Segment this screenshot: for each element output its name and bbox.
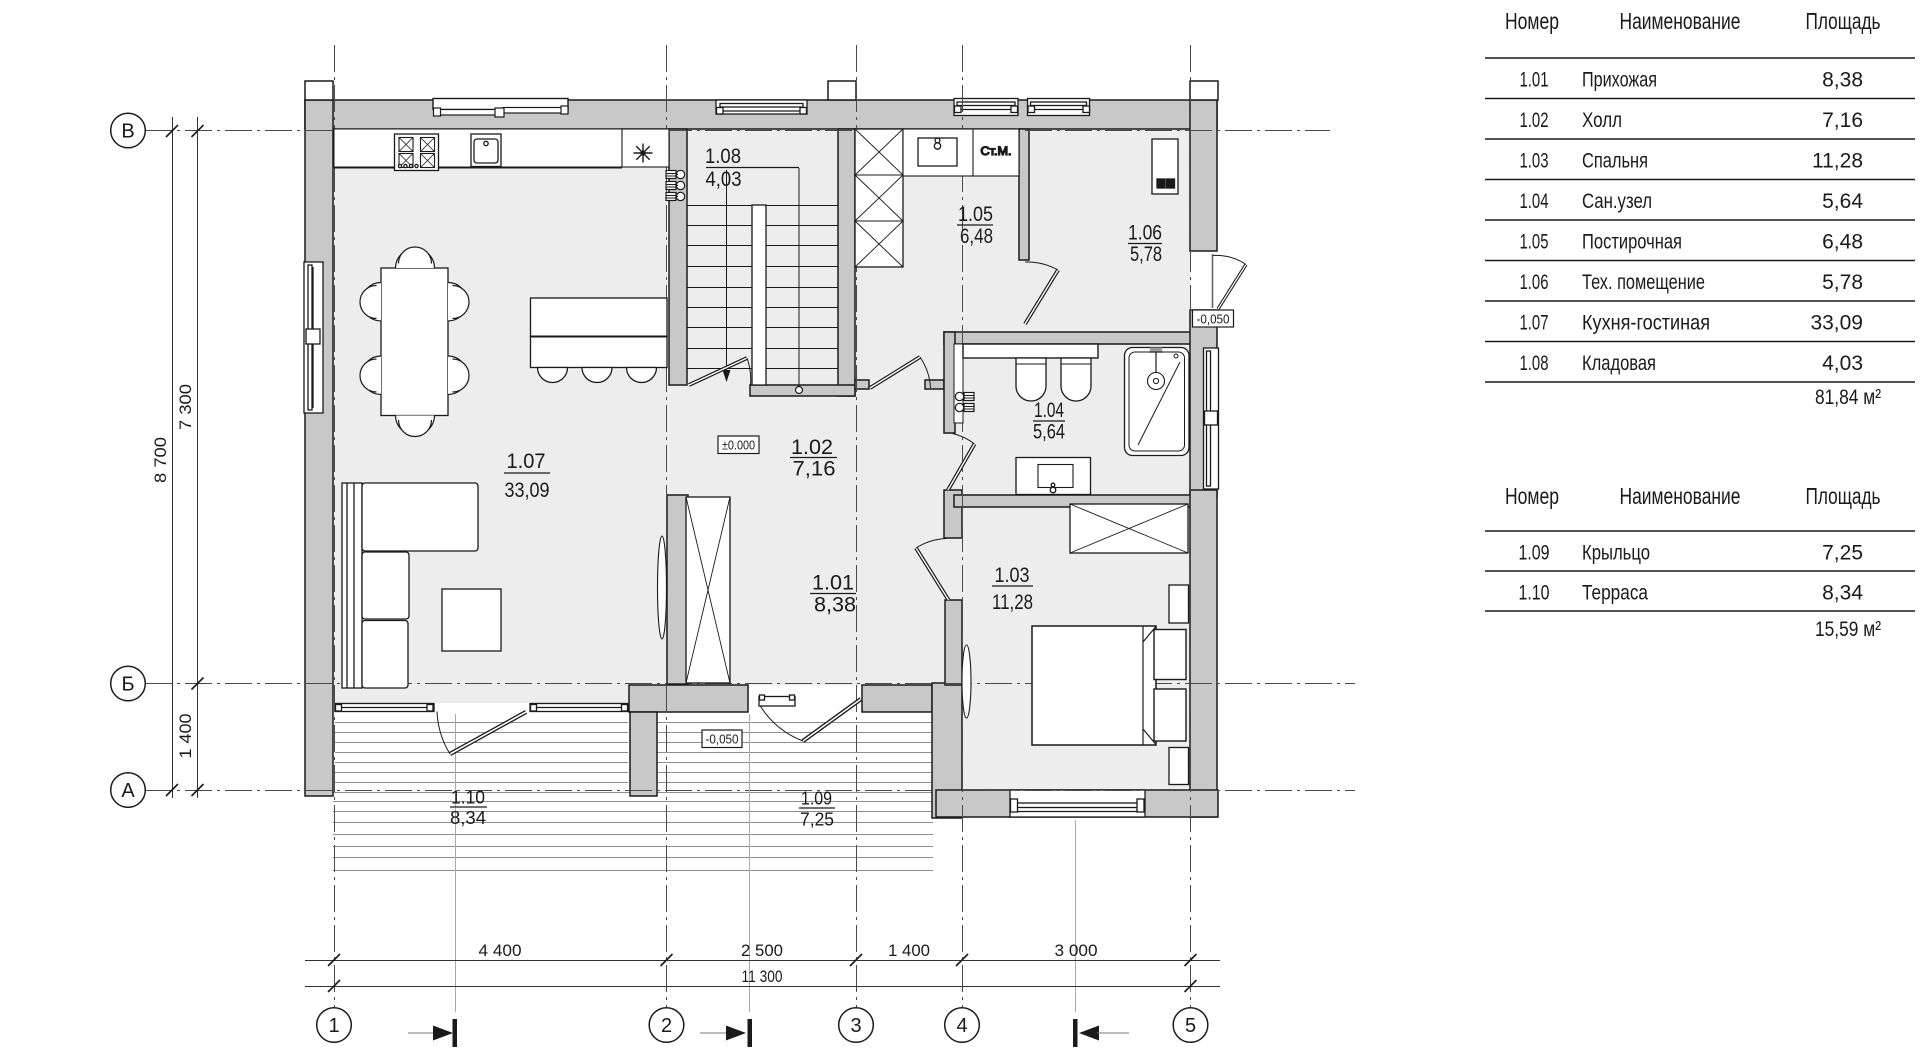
- svg-text:Номер: Номер: [1505, 8, 1559, 34]
- svg-text:1.03: 1.03: [995, 564, 1030, 587]
- svg-text:1.08: 1.08: [1520, 352, 1549, 375]
- svg-text:Кладовая: Кладовая: [1582, 352, 1656, 375]
- svg-text:Площадь: Площадь: [1806, 483, 1881, 509]
- svg-text:1.01: 1.01: [812, 572, 854, 595]
- svg-text:8,38: 8,38: [814, 594, 856, 617]
- svg-text:1.10: 1.10: [1519, 582, 1550, 605]
- svg-text:2: 2: [661, 1015, 672, 1037]
- svg-text:8,34: 8,34: [1822, 582, 1863, 605]
- svg-text:8,38: 8,38: [1822, 69, 1863, 92]
- svg-text:1.06: 1.06: [1128, 222, 1162, 245]
- svg-text:Крыльцо: Крыльцо: [1582, 542, 1650, 565]
- svg-text:А: А: [121, 780, 135, 802]
- svg-text:4 400: 4 400: [479, 941, 522, 960]
- svg-text:1.07: 1.07: [507, 450, 546, 473]
- svg-text:В: В: [121, 121, 134, 143]
- svg-text:15,59 м²: 15,59 м²: [1815, 618, 1881, 641]
- svg-text:1.08: 1.08: [705, 145, 741, 168]
- svg-text:81,84 м²: 81,84 м²: [1815, 386, 1881, 409]
- svg-text:Наименование: Наименование: [1620, 483, 1741, 509]
- svg-text:11 300: 11 300: [742, 967, 783, 986]
- svg-text:4,03: 4,03: [706, 168, 742, 191]
- svg-text:±0.000: ±0.000: [722, 438, 755, 453]
- svg-text:33,09: 33,09: [1810, 312, 1863, 335]
- svg-text:1: 1: [328, 1015, 339, 1037]
- svg-text:1.02: 1.02: [1520, 109, 1549, 132]
- svg-text:1.10: 1.10: [451, 788, 485, 808]
- svg-text:1.05: 1.05: [1520, 231, 1549, 254]
- svg-text:Терраса: Терраса: [1582, 582, 1648, 605]
- svg-text:Сан.узел: Сан.узел: [1582, 190, 1652, 213]
- svg-text:8 700: 8 700: [151, 437, 170, 483]
- svg-text:5,64: 5,64: [1822, 190, 1863, 213]
- svg-text:1.04: 1.04: [1034, 399, 1064, 422]
- svg-text:1 400: 1 400: [176, 714, 195, 759]
- svg-text:Наименование: Наименование: [1620, 8, 1741, 34]
- svg-text:6,48: 6,48: [960, 225, 993, 248]
- svg-text:1.03: 1.03: [1520, 150, 1549, 173]
- svg-text:7,25: 7,25: [1822, 542, 1863, 565]
- svg-text:1.02: 1.02: [791, 436, 833, 459]
- svg-text:Постирочная: Постирочная: [1582, 231, 1682, 254]
- svg-text:Тех. помещение: Тех. помещение: [1582, 271, 1705, 294]
- svg-text:Кухня-гостиная: Кухня-гостиная: [1582, 312, 1710, 335]
- svg-text:1.01: 1.01: [1520, 69, 1549, 92]
- svg-text:Площадь: Площадь: [1806, 8, 1881, 34]
- svg-text:3: 3: [850, 1015, 861, 1037]
- svg-text:1.05: 1.05: [958, 203, 993, 226]
- svg-text:5,78: 5,78: [1822, 271, 1863, 294]
- svg-text:4,03: 4,03: [1822, 352, 1863, 375]
- svg-text:2 500: 2 500: [741, 941, 783, 960]
- svg-text:5: 5: [1185, 1015, 1196, 1037]
- svg-text:Прихожая: Прихожая: [1582, 69, 1657, 92]
- svg-text:Холл: Холл: [1582, 109, 1622, 132]
- svg-text:33,09: 33,09: [505, 479, 550, 502]
- svg-text:Номер: Номер: [1505, 483, 1559, 509]
- svg-text:3 000: 3 000: [1055, 941, 1098, 960]
- svg-text:6,48: 6,48: [1822, 231, 1863, 254]
- svg-text:5,78: 5,78: [1130, 243, 1162, 266]
- svg-text:1.06: 1.06: [1520, 271, 1549, 294]
- svg-text:7,25: 7,25: [800, 810, 834, 830]
- svg-text:1.09: 1.09: [1519, 542, 1550, 565]
- svg-text:7,16: 7,16: [793, 458, 836, 481]
- svg-text:5,64: 5,64: [1033, 421, 1065, 444]
- svg-text:1.09: 1.09: [801, 789, 832, 809]
- svg-text:1.07: 1.07: [1520, 312, 1549, 335]
- svg-text:-0,050: -0,050: [1197, 312, 1230, 327]
- svg-text:11,28: 11,28: [1812, 150, 1863, 173]
- svg-text:7 300: 7 300: [176, 384, 195, 430]
- svg-text:1.04: 1.04: [1520, 190, 1549, 213]
- svg-text:4: 4: [956, 1015, 967, 1037]
- svg-text:1 400: 1 400: [888, 941, 930, 960]
- svg-text:8,34: 8,34: [450, 808, 486, 828]
- svg-text:7,16: 7,16: [1822, 109, 1863, 132]
- svg-text:11,28: 11,28: [992, 591, 1033, 614]
- svg-text:-0,050: -0,050: [706, 732, 739, 747]
- svg-text:Ст.М.: Ст.М.: [981, 146, 1012, 158]
- svg-text:Б: Б: [121, 674, 134, 696]
- svg-text:Спальня: Спальня: [1582, 150, 1648, 173]
